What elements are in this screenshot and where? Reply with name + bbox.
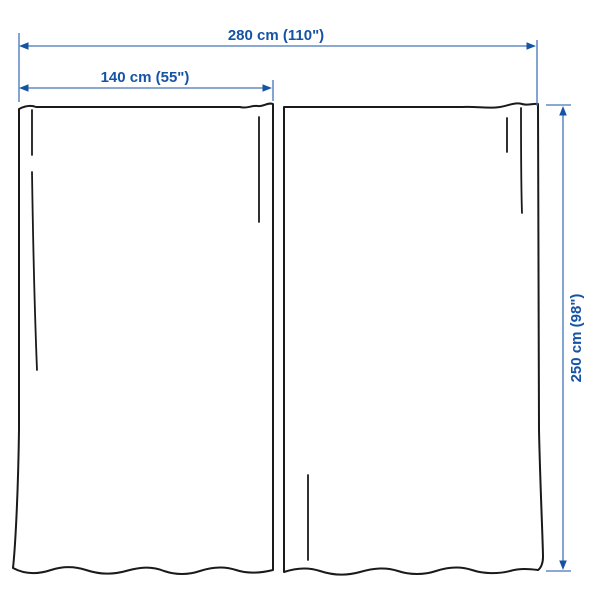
curtain-right-outline <box>284 103 543 574</box>
dimension-height-label: 250 cm (98") <box>568 294 585 383</box>
dimension-height: 250 cm (98") <box>546 105 585 571</box>
arrowhead-down-icon <box>559 561 567 571</box>
curtain-panel-right <box>284 103 543 574</box>
curtain-left-outline <box>13 104 273 574</box>
arrowhead-right-icon <box>263 84 273 92</box>
curtain-left-fold-line-long <box>32 172 37 370</box>
dimension-total-width: 280 cm (110") <box>19 27 537 106</box>
arrowhead-left-icon <box>19 84 29 92</box>
arrowhead-left-icon <box>19 42 29 50</box>
dimension-total-width-label: 280 cm (110") <box>228 27 324 44</box>
curtain-panel-left <box>13 104 273 574</box>
dimension-panel-width-label: 140 cm (55") <box>101 69 190 86</box>
dimension-panel-width: 140 cm (55") <box>19 69 273 101</box>
product-dimension-diagram: 280 cm (110") 140 cm (55") 250 cm (98") <box>0 0 600 600</box>
arrowhead-up-icon <box>559 106 567 116</box>
diagram-canvas: 280 cm (110") 140 cm (55") 250 cm (98") <box>0 0 600 600</box>
curtain-right-fold-line-long <box>521 108 522 213</box>
arrowhead-right-icon <box>527 42 537 50</box>
